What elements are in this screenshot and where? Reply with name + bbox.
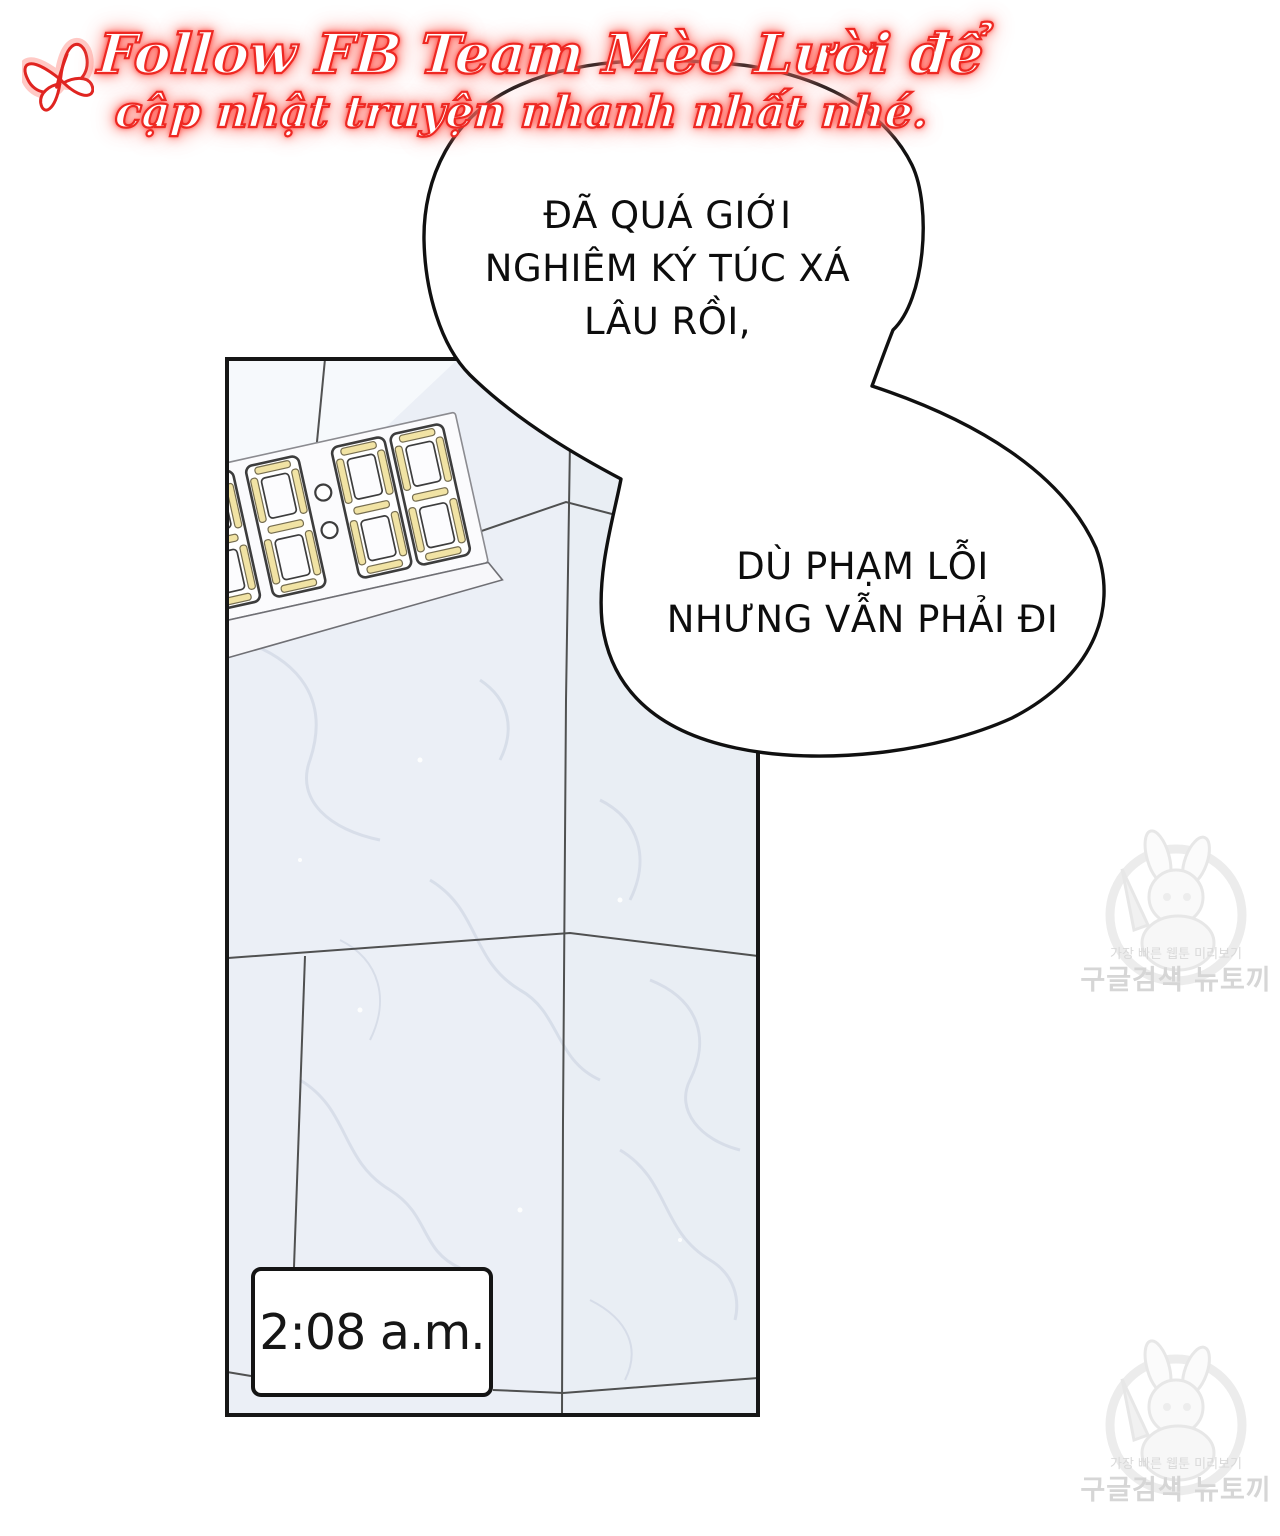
bubble2-line1: DÙ PHẠM LỖI bbox=[630, 540, 1095, 593]
bubble1-line3: LÂU RỒI, bbox=[450, 295, 885, 348]
bubble1-line2: NGHIÊM KÝ TÚC XÁ bbox=[450, 242, 885, 295]
site-watermark: 가장 빠른 웹툰 미리보기 구글검색 뉴토끼 bbox=[1092, 1341, 1260, 1521]
watermark-text-big: 구글검색 뉴토끼 bbox=[1062, 1468, 1280, 1507]
speech-bubble-1-text: ĐÃ QUÁ GIỚI NGHIÊM KÝ TÚC XÁ LÂU RỒI, bbox=[450, 189, 885, 348]
bubble2-line2: NHƯNG VẪN PHẢI ĐI bbox=[630, 593, 1095, 646]
butterfly-icon bbox=[22, 24, 94, 120]
time-caption: 2:08 a.m. bbox=[259, 1304, 485, 1361]
bubble1-line1: ĐÃ QUÁ GIỚI bbox=[450, 189, 885, 242]
banner-line-1: Follow FB Team Mèo Lười để bbox=[96, 22, 682, 86]
banner-line-2: cập nhật truyện nhanh nhất nhé. bbox=[113, 86, 682, 140]
translator-banner: Follow FB Team Mèo Lười để cập nhật truy… bbox=[20, 22, 680, 140]
watermark-text-big: 구글검색 뉴토끼 bbox=[1062, 958, 1280, 997]
comic-page: Follow FB Team Mèo Lười để cập nhật truy… bbox=[0, 0, 1280, 1536]
site-watermark: 가장 빠른 웹툰 미리보기 구글검색 뉴토끼 bbox=[1092, 831, 1260, 1011]
speech-bubble-2-text: DÙ PHẠM LỖI NHƯNG VẪN PHẢI ĐI bbox=[630, 540, 1095, 646]
time-caption-box: 2:08 a.m. bbox=[251, 1267, 493, 1397]
